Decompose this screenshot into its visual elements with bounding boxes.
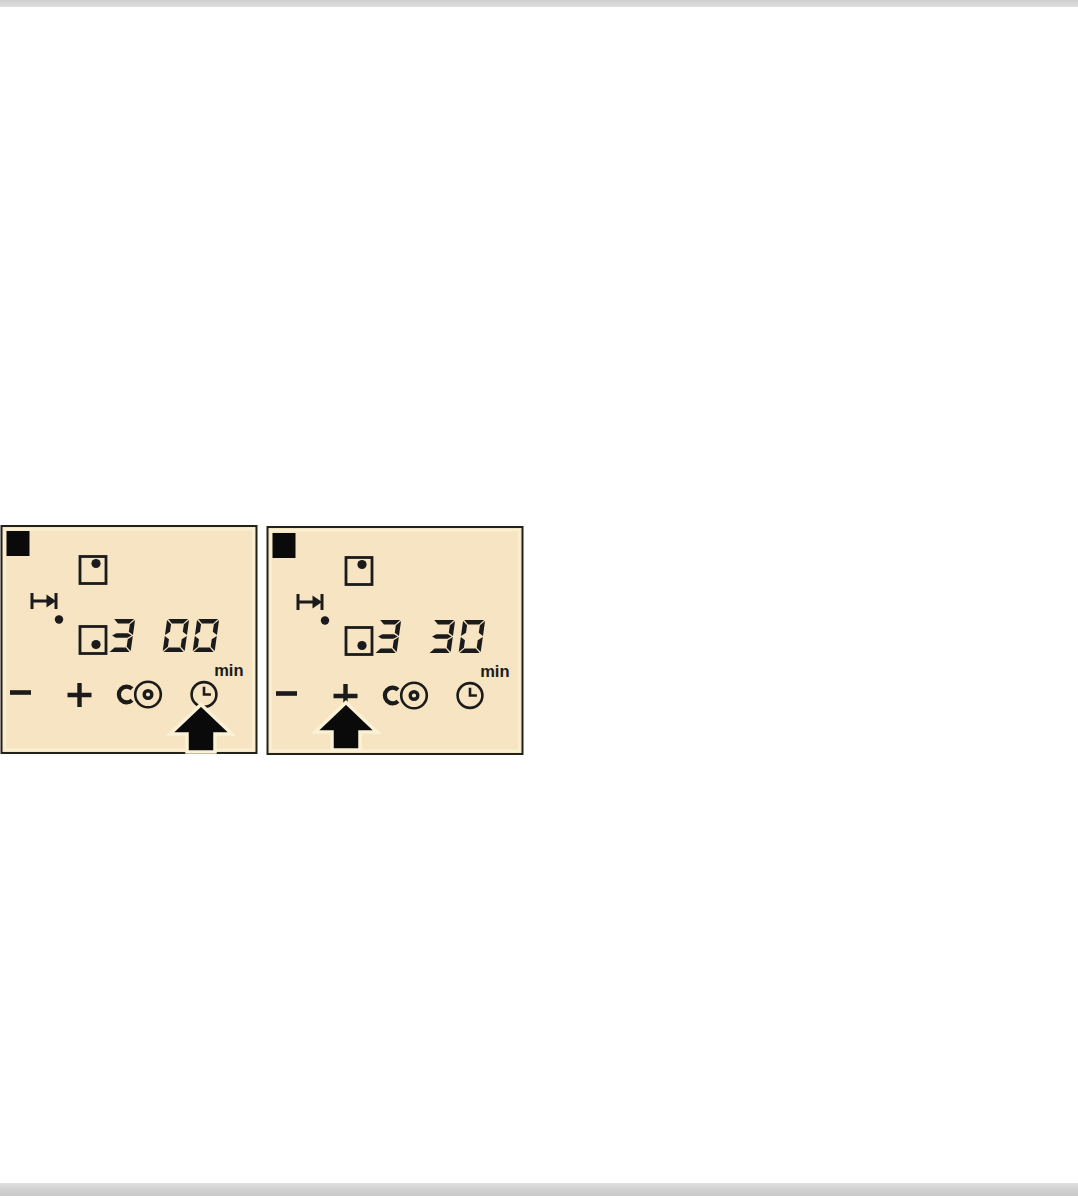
- bottom-page-rule: [0, 1183, 1078, 1196]
- indicator-dot: [55, 615, 63, 623]
- top-page-rule: [0, 0, 1078, 7]
- minutes-label: min: [480, 662, 509, 680]
- step-marker: [7, 531, 30, 556]
- minutes-label: min: [214, 661, 243, 679]
- step-marker: [273, 533, 296, 558]
- indicator-dot: [321, 616, 329, 624]
- hob-panel-figure-1: min: [0, 525, 258, 754]
- hob-panel-figure-2: min: [266, 526, 524, 755]
